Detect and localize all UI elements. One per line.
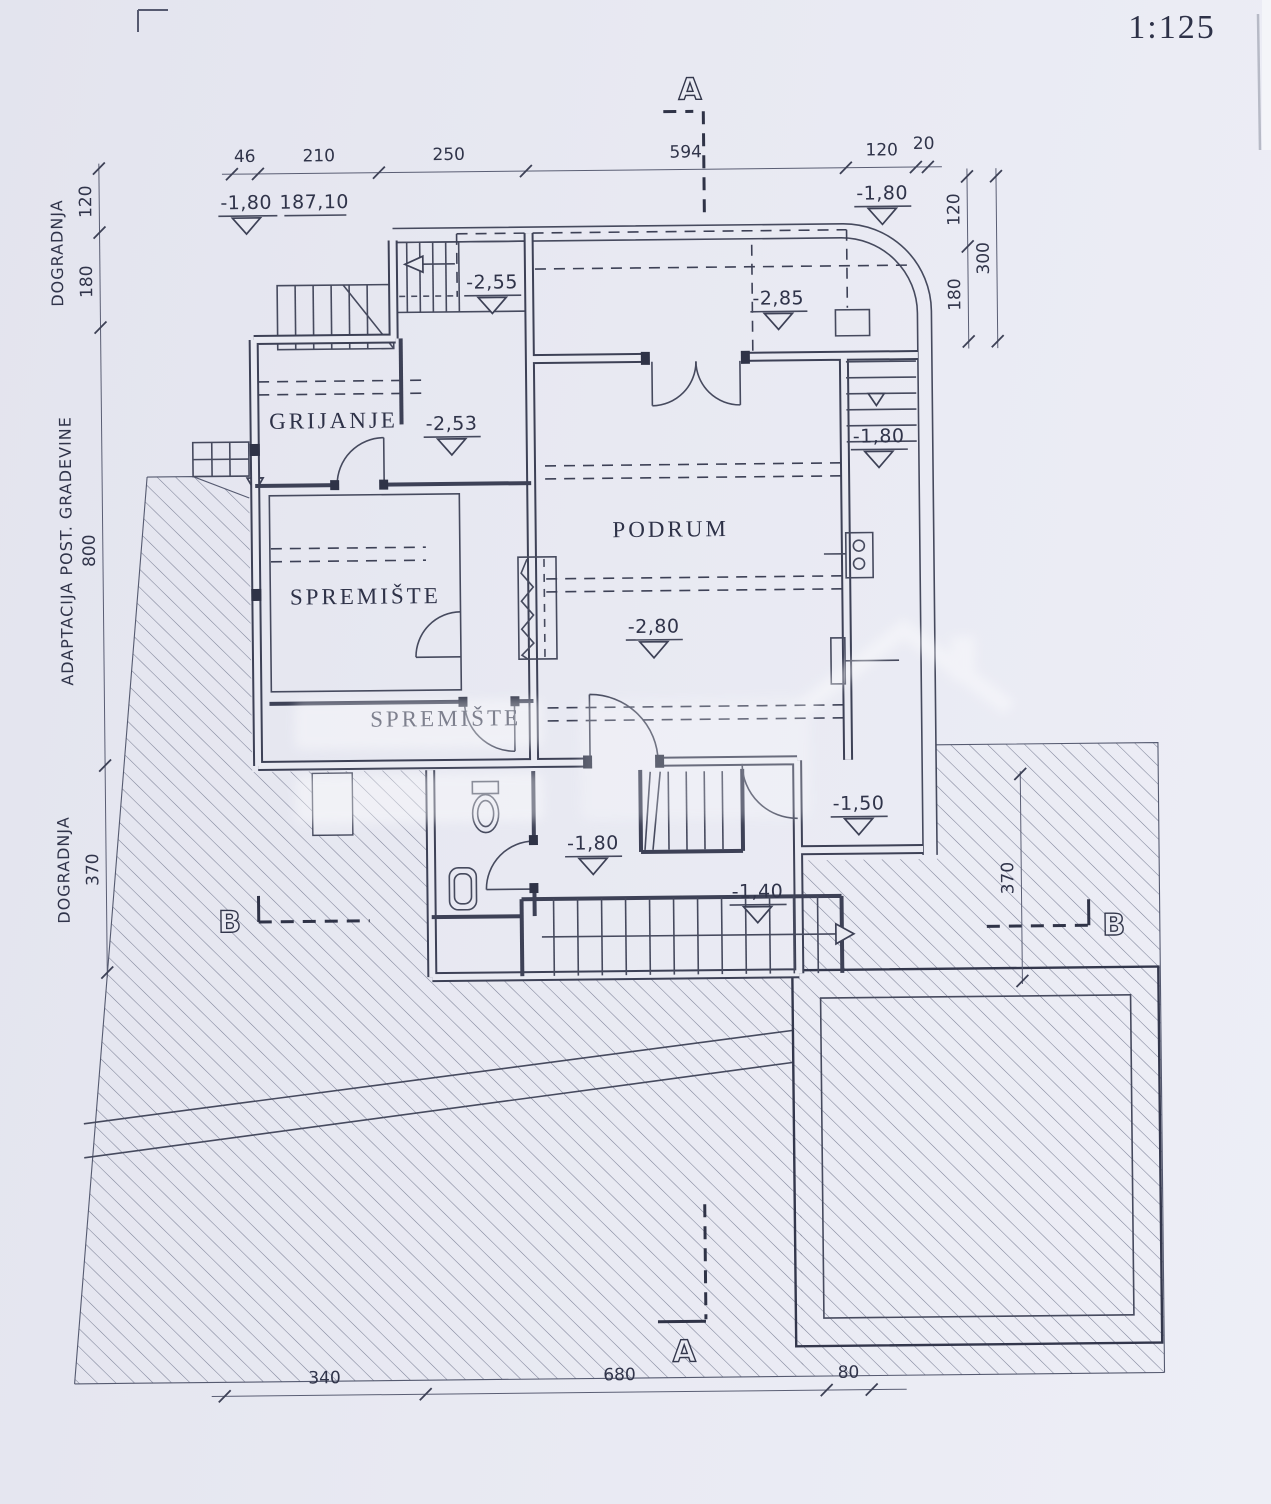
dim-chain-right: 120 180 300 bbox=[944, 168, 1004, 349]
storage-east-door bbox=[416, 612, 461, 657]
wc-door bbox=[486, 841, 535, 890]
dim-top-46: 46 bbox=[234, 147, 256, 167]
level-entry-right: -1,80 bbox=[854, 182, 911, 225]
dim-right-300: 300 bbox=[974, 242, 994, 275]
level-landing-value: -1,50 bbox=[833, 792, 885, 815]
dim-bottom-340: 340 bbox=[308, 1368, 341, 1388]
entrance-door-right bbox=[696, 361, 740, 405]
level-entry-left-abs: 187,10 bbox=[279, 191, 349, 214]
annotation-adaptacija: ADAPTACIJA POST. GRADEVINE bbox=[55, 416, 77, 686]
dim-top-120: 120 bbox=[865, 140, 898, 160]
level-hall: -1,80 bbox=[565, 832, 622, 875]
washbasin bbox=[449, 868, 476, 910]
dim-top-594: 594 bbox=[669, 142, 702, 162]
dim-right-370: 370 bbox=[998, 862, 1018, 895]
scanned-floor-plan-page: A A B B 46 210 bbox=[0, 0, 1271, 1504]
room-label-podrum: PODRUM bbox=[612, 516, 729, 542]
level-entry-right-value: -1,80 bbox=[856, 182, 908, 205]
dim-bottom-80: 80 bbox=[838, 1363, 860, 1383]
dim-top-250: 250 bbox=[432, 145, 465, 165]
drawing: A A B B 46 210 bbox=[46, 68, 1165, 1404]
dim-chain-top: 46 210 250 594 120 20 bbox=[222, 134, 942, 181]
section-b-left-label: B bbox=[218, 905, 241, 940]
hatch-right bbox=[795, 743, 1165, 1377]
dim-left-120: 120 bbox=[76, 185, 96, 218]
column-box bbox=[835, 310, 869, 336]
level-mid-landing-value: -1,40 bbox=[732, 880, 784, 903]
level-entry-left: -1,80 187,10 bbox=[218, 191, 349, 234]
level-heating: -2,53 bbox=[423, 413, 480, 456]
level-porch-value: -2,85 bbox=[752, 287, 804, 310]
annotation-dogradnja-top: DOGRADNJA bbox=[47, 199, 67, 307]
watermark bbox=[294, 628, 1011, 823]
level-east-stairs: -1,80 bbox=[851, 425, 908, 468]
dim-left-370: 370 bbox=[83, 853, 103, 886]
watermark-bar-2 bbox=[295, 773, 543, 824]
level-basement-value: -2,80 bbox=[628, 616, 680, 639]
dim-top-20: 20 bbox=[913, 134, 935, 154]
room-label-grijanje: GRIJANJE bbox=[269, 407, 398, 433]
annotation-dogradnja-bottom: DOGRADNJA bbox=[54, 816, 74, 924]
floor-plan-svg: A A B B 46 210 bbox=[0, 0, 1271, 1504]
level-porch: -2,85 bbox=[750, 287, 807, 330]
dim-bottom-680: 680 bbox=[603, 1365, 636, 1385]
level-mid-landing: -1,40 bbox=[729, 880, 786, 923]
dim-right-180: 180 bbox=[945, 278, 965, 311]
dim-chain-left: 120 180 800 370 DOGRADNJA ADAPTACIJA POS… bbox=[47, 163, 114, 980]
level-heating-value: -2,53 bbox=[426, 413, 478, 436]
entrance-door-left bbox=[652, 361, 696, 405]
room-label-spremiste-upper: SPREMIŠTE bbox=[290, 582, 441, 610]
level-entry-left-value: -1,80 bbox=[220, 192, 272, 215]
heating-door bbox=[337, 438, 384, 485]
dim-right-120: 120 bbox=[944, 193, 964, 226]
level-stair-top: -2,55 bbox=[464, 271, 521, 314]
section-b-right-label: B bbox=[1102, 908, 1125, 943]
scale-label: 1:125 bbox=[1128, 9, 1215, 46]
level-hall-value: -1,80 bbox=[567, 832, 619, 855]
section-a-bottom-label: A bbox=[672, 1334, 696, 1369]
page-edge bbox=[1258, 14, 1260, 150]
level-basement: -2,80 bbox=[626, 615, 683, 658]
dim-top-210: 210 bbox=[302, 146, 335, 166]
level-east-stairs-value: -1,80 bbox=[853, 425, 905, 448]
level-landing: -1,50 bbox=[830, 792, 887, 835]
corner-mark bbox=[138, 10, 168, 32]
level-stair-top-value: -2,55 bbox=[466, 271, 518, 294]
page-edge-highlight bbox=[1262, 0, 1271, 150]
dim-left-180: 180 bbox=[77, 265, 97, 298]
watermark-chimney bbox=[951, 636, 975, 680]
watermark-block bbox=[579, 698, 810, 820]
projection-lines bbox=[257, 229, 918, 724]
section-a-top-label: A bbox=[678, 72, 702, 107]
dim-left-800: 800 bbox=[80, 534, 100, 567]
watermark-bar-1 bbox=[294, 699, 542, 750]
